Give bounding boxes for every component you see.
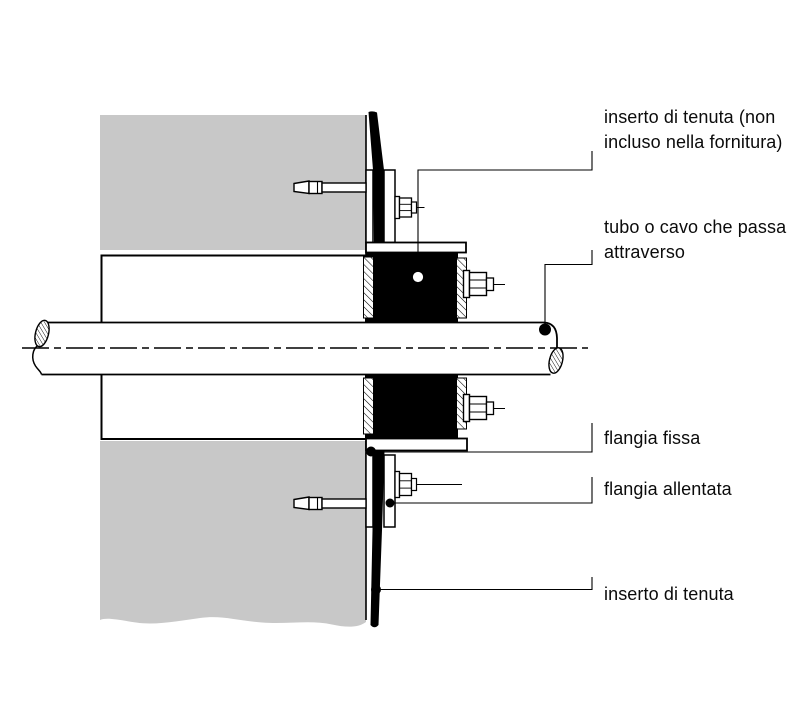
leader-loose-flange [390, 477, 592, 503]
fixed-flange-lower [366, 439, 467, 451]
lower-wall [100, 441, 366, 627]
label-seal-insert-top-line1: inserto di tenuta (non [604, 107, 775, 127]
anchor-bolt-lower [294, 497, 366, 510]
label-pipe-or-cable-line1: tubo o cavo che passa [604, 217, 787, 237]
leader-dot-pipe-or-cable [539, 324, 551, 336]
label-loose-flange: flangia allentata [604, 479, 733, 499]
label-seal-insert-top-line2: incluso nella fornitura) [604, 132, 783, 152]
leader-dot-seal-insert-bottom [371, 585, 381, 595]
label-seal-insert-bottom: inserto di tenuta [604, 584, 735, 604]
technical-diagram: inserto di tenuta (non incluso nella for… [0, 0, 800, 716]
fixed-flange-upper [366, 243, 466, 253]
compression-bolt-upper [464, 271, 506, 298]
seal-block-upper-left-gland [364, 257, 374, 318]
leader-seal-insert-bottom [376, 577, 592, 590]
loose-flange-lower-backing-bar [366, 453, 373, 527]
compression-bolt-lower [464, 395, 506, 422]
wall-penetration-seal-drawing: inserto di tenuta (non incluso nella for… [0, 0, 800, 716]
label-pipe-or-cable-line2: attraverso [604, 242, 685, 262]
seal-block-lower-left-gland [364, 378, 374, 434]
clamp-nut-upper [395, 197, 425, 219]
seal-block-upper [366, 253, 458, 323]
leader-dot-seal-insert-top [412, 271, 424, 283]
leader-pipe-or-cable [545, 250, 592, 329]
loose-flange-upper-backing-bar [366, 170, 373, 243]
loose-flange-lower [384, 455, 395, 527]
seal-block-lower [366, 374, 458, 439]
label-fixed-flange: flangia fissa [604, 428, 701, 448]
leader-dot-loose-flange [386, 499, 395, 508]
clamp-nut-lower [395, 472, 462, 498]
leader-dot-fixed-flange [366, 447, 376, 457]
loose-flange-upper [384, 170, 395, 243]
anchor-bolt-upper [294, 181, 366, 194]
